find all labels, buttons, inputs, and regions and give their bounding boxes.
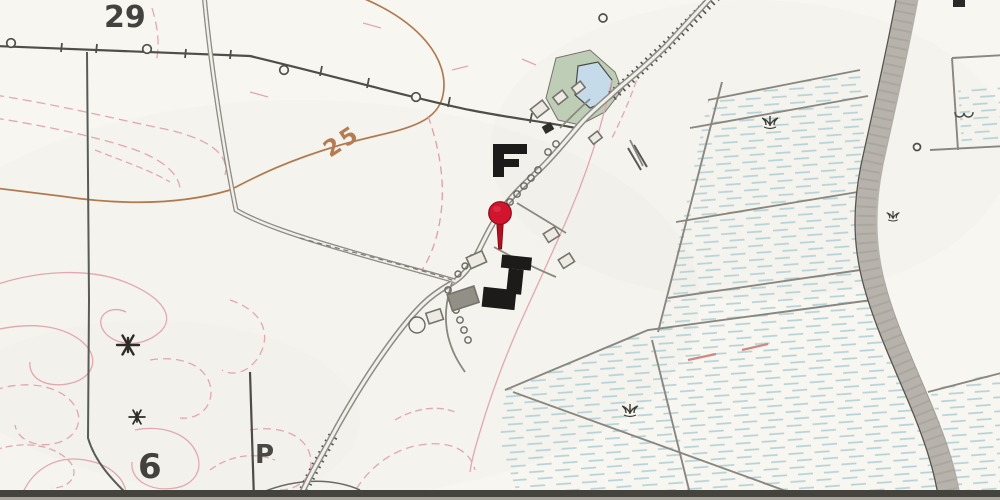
map-sheet-edge [0, 490, 1000, 500]
pin-highlight [493, 206, 501, 212]
parcel-number-bottom: 6 [138, 447, 162, 487]
parcel-number-top: 29 [104, 0, 146, 35]
pin-head [489, 202, 512, 225]
boundary-letter-label: P [255, 440, 274, 470]
map-canvas: 29 6 25 P [0, 0, 1000, 500]
map-viewport[interactable]: 29 6 25 P [0, 0, 1000, 500]
